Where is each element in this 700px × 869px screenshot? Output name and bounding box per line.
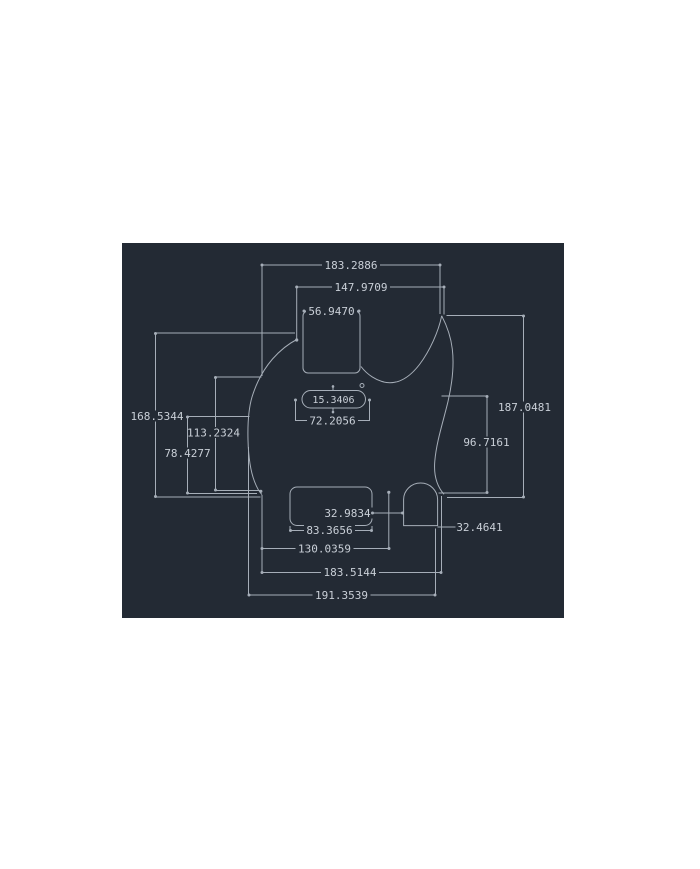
dim-label-top-span-inner: 147.9709 — [335, 281, 388, 294]
dimension-left-height-outer: 168.5344 — [128, 333, 186, 497]
dimension-bottom-span-outer: 191.3539 — [249, 589, 436, 602]
dim-label-jack-width: 32.4641 — [456, 521, 502, 534]
dim-label-top-span-outer: 183.2886 — [325, 259, 378, 272]
neck-pocket-cutout — [303, 311, 360, 373]
dim-label-right-height-outer: 187.0481 — [498, 401, 551, 414]
dim-label-bottom-span-outer: 191.3539 — [315, 589, 368, 602]
dim-label-right-height-inner: 96.7161 — [463, 436, 509, 449]
dim-label-left-height-inner: 78.4277 — [164, 447, 210, 460]
dim-label-bottom-span-inner: 130.0359 — [298, 543, 351, 556]
page: 183.2886 147.9709 56.9470 168.5344 1 — [0, 0, 700, 869]
dimension-bridge-to-jack: 32.9834 — [323, 507, 404, 520]
dimension-bottom-span-inner: 130.0359 — [262, 543, 390, 556]
dimension-slot-height: 15.3406 — [312, 395, 354, 406]
dim-label-bridge-to-jack: 32.9834 — [324, 507, 371, 520]
dimension-top-span-inner: 147.9709 — [297, 281, 444, 294]
dimension-bottom-span-mid: 183.5144 — [262, 566, 442, 579]
cad-drawing: 183.2886 147.9709 56.9470 168.5344 1 — [122, 243, 564, 618]
dimension-slot-width: 72.2056 — [296, 415, 370, 428]
dimension-left-height-mid: 113.2324 — [185, 377, 243, 491]
datum-marker — [360, 384, 364, 388]
dimension-neck-pocket-width: 56.9470 — [303, 305, 360, 318]
dimension-jack-width: 32.4641 — [438, 521, 503, 534]
dim-label-slot-width: 72.2056 — [309, 415, 355, 428]
dim-label-neck-pocket-width: 56.9470 — [308, 305, 354, 318]
dim-label-bridge-width: 83.3656 — [306, 524, 352, 537]
outline-left-edge — [248, 340, 297, 495]
jack-arch-cutout — [404, 483, 438, 526]
dimension-right-height-outer: 187.0481 — [496, 316, 554, 498]
dimension-top-span-outer: 183.2886 — [262, 259, 440, 272]
outline-right-edge — [435, 316, 453, 495]
dim-label-left-height-mid: 113.2324 — [187, 427, 240, 440]
dim-label-bottom-span-mid: 183.5144 — [324, 566, 377, 579]
dim-label-slot-height: 15.3406 — [312, 395, 354, 406]
dim-label-left-height-outer: 168.5344 — [131, 410, 184, 423]
cad-drawing-canvas: 183.2886 147.9709 56.9470 168.5344 1 — [122, 243, 564, 618]
outline-top-edge — [361, 316, 442, 383]
